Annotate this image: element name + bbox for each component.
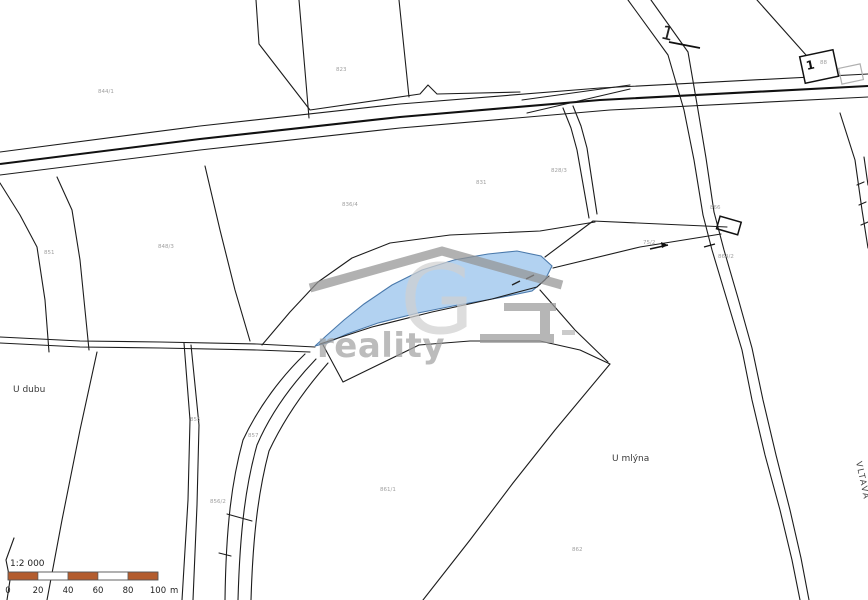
scalebar-segment	[8, 572, 38, 580]
parcel-number: 836/4	[342, 202, 358, 208]
parcel-number: 831	[476, 180, 487, 186]
boundary-line	[299, 0, 309, 118]
scalebar-segment	[68, 572, 98, 580]
boundary-line	[399, 0, 409, 97]
parcel-number: 828/3	[551, 168, 567, 174]
scalebar: 1:2 000 020406080100 m	[5, 559, 178, 596]
parcel-number: 88	[820, 60, 827, 66]
scalebar-unit: m	[170, 586, 178, 596]
track-edge	[714, 212, 809, 600]
parcel-number: 861/1	[380, 487, 396, 493]
band-edge	[225, 354, 305, 600]
cadastral-map-image: G reality U dubu U mlýna VLTAVA 1 1 844/…	[0, 0, 868, 600]
scalebar-tick-label: 80	[123, 586, 134, 596]
boundary-line	[540, 290, 608, 362]
band-cross-line	[227, 514, 252, 521]
band-edge	[251, 363, 328, 600]
scalebar-segment	[128, 572, 158, 580]
culvert-symbol	[716, 216, 741, 235]
band-cross-line	[219, 553, 231, 556]
scalebar-tick-label: 20	[33, 586, 44, 596]
label-u-dubu: U dubu	[13, 385, 45, 395]
slope-hatch	[859, 202, 866, 205]
scalebar-tick-labels: 020406080100	[5, 586, 166, 596]
scalebar-tick-label: 40	[63, 586, 74, 596]
boundary-line	[563, 108, 589, 218]
scalebar-segment	[38, 572, 68, 580]
label-u-mlyna: U mlýna	[612, 454, 649, 464]
boundary-line	[553, 234, 721, 268]
road-edge-bottom	[0, 97, 868, 175]
band-edge	[238, 359, 316, 600]
boundary-line	[256, 0, 520, 110]
slope-edge	[840, 113, 868, 248]
band-edge	[191, 345, 199, 600]
parcel-number: 856/2	[210, 499, 226, 505]
scalebar-segment	[98, 572, 128, 580]
map-canvas: G reality U dubu U mlýna VLTAVA 1 1 844/…	[0, 0, 868, 600]
boundary-line	[205, 166, 250, 341]
arrow-mark	[704, 244, 715, 247]
label-vltava: VLTAVA	[853, 461, 868, 502]
boundary-line	[47, 352, 97, 600]
scalebar-tick-label: 100	[150, 586, 166, 596]
boundary-line	[757, 0, 806, 55]
parcel-number: 862	[572, 547, 583, 553]
boundary-line	[545, 221, 727, 257]
watermark-brand-text: reality	[317, 326, 445, 366]
slope-edge	[864, 157, 868, 185]
boundary-line	[57, 177, 89, 350]
scalebar-segments	[8, 572, 158, 580]
parcel-number: 851	[44, 250, 55, 256]
watermark-logo-block	[480, 303, 575, 343]
parcel-number: 855	[190, 417, 201, 423]
parcel-number: 823	[336, 67, 347, 73]
parcel-number: 75/2	[643, 240, 655, 246]
track-edge	[703, 215, 800, 600]
parcel-number: 844/1	[98, 89, 114, 95]
parcel-number: 866	[710, 205, 721, 211]
parcel-number: 857	[248, 433, 259, 439]
boundary-line	[450, 222, 595, 235]
parcel-number: 848/3	[158, 244, 174, 250]
scalebar-ratio: 1:2 000	[10, 559, 45, 569]
boundary-line	[0, 183, 49, 352]
boundary-line	[423, 364, 610, 600]
parcel-number: 864/2	[718, 254, 734, 260]
scalebar-tick-label: 60	[93, 586, 104, 596]
band-edge	[182, 343, 190, 600]
road-edge-top	[0, 74, 868, 152]
scalebar-tick-label: 0	[5, 586, 10, 596]
